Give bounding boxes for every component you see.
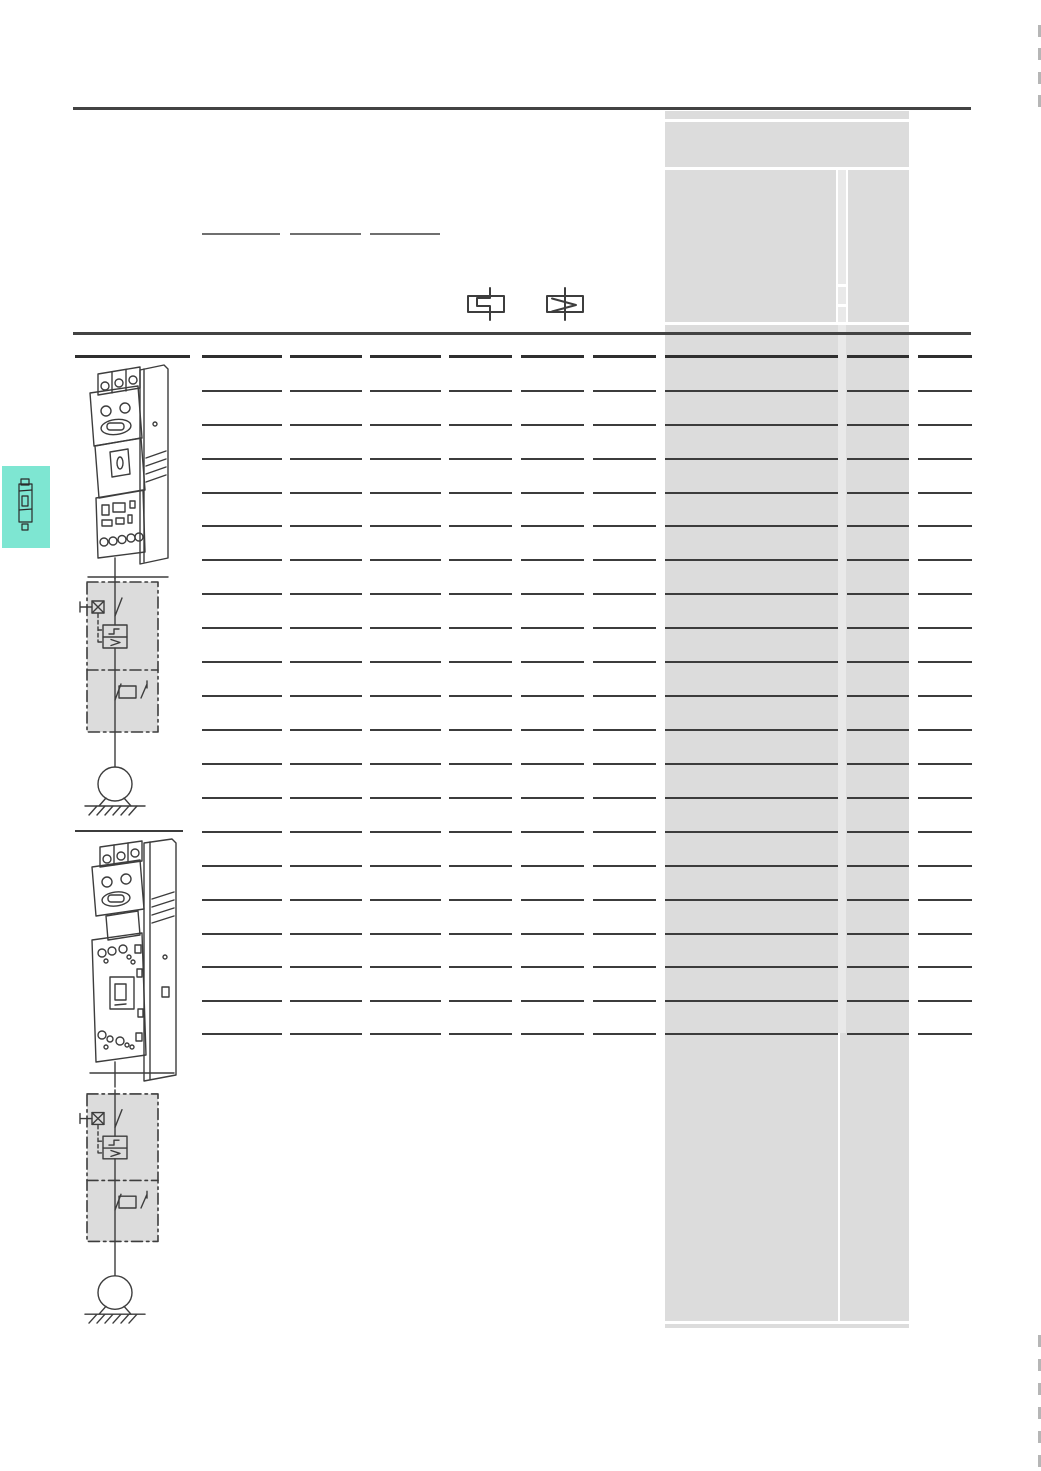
table-row-line (290, 390, 362, 392)
redacted-text-line (290, 233, 361, 235)
table-row-line (370, 661, 441, 663)
catalog-page (0, 0, 1041, 1471)
table-row-line (918, 695, 972, 697)
table-row-line (847, 933, 909, 935)
table-row-line (521, 797, 584, 799)
table-row-line (521, 966, 584, 968)
table-row-line (521, 661, 584, 663)
table-row-line (521, 763, 584, 765)
table-row-line (918, 899, 972, 901)
table-row-line (290, 525, 362, 527)
table-row-line (449, 763, 512, 765)
chapter-tab (2, 466, 50, 548)
wiring-diagram-1 (75, 578, 175, 818)
table-row-line (202, 661, 282, 663)
info-panel-strip-divider (836, 284, 848, 287)
info-panel-divider (665, 1321, 909, 1324)
table-header-line (665, 355, 838, 358)
table-row-line (449, 966, 512, 968)
table-row-line (370, 797, 441, 799)
table-row-line (847, 899, 909, 901)
edge-tick (1038, 25, 1041, 37)
table-header-line (449, 355, 512, 358)
table-row-line (665, 695, 838, 697)
table-row-line (290, 797, 362, 799)
info-panel-divider (665, 322, 909, 325)
table-row-line (847, 831, 909, 833)
table-header-line (290, 355, 362, 358)
table-row-line (290, 593, 362, 595)
info-panel-strip-divider (836, 304, 848, 307)
table-row-line (521, 899, 584, 901)
table-row-line (665, 661, 838, 663)
edge-tick (1038, 1359, 1041, 1371)
table-row-line (449, 865, 512, 867)
table-row-line (847, 729, 909, 731)
table-row-line (290, 492, 362, 494)
table-top-rule (73, 332, 971, 335)
table-row-line (290, 695, 362, 697)
section-separator (75, 830, 183, 832)
table-row-line (593, 797, 656, 799)
table-row-line (847, 865, 909, 867)
table-row-line (521, 1000, 584, 1002)
table-row-line (449, 933, 512, 935)
table-row-line (918, 933, 972, 935)
table-row-line (847, 525, 909, 527)
table-header-line (918, 355, 972, 358)
table-row-line (449, 899, 512, 901)
table-row-line (202, 390, 282, 392)
info-panel-vdivider (846, 169, 848, 322)
table-row-line (665, 933, 838, 935)
table-row-line (665, 559, 838, 561)
table-row-line (918, 865, 972, 867)
table-row-line (202, 424, 282, 426)
table-row-line (665, 627, 838, 629)
table-header-line (521, 355, 584, 358)
table-row-line (593, 559, 656, 561)
table-row-line (593, 729, 656, 731)
table-row-line (521, 492, 584, 494)
table-row-line (593, 390, 656, 392)
table-row-line (202, 695, 282, 697)
table-row-line (290, 1033, 362, 1035)
table-row-line (593, 831, 656, 833)
table-row-line (370, 627, 441, 629)
thermal-overload-release-symbol (462, 282, 508, 326)
table-row-line (202, 593, 282, 595)
redacted-text-line (202, 233, 280, 235)
table-row-line (918, 458, 972, 460)
table-row-line (665, 424, 838, 426)
table-row-line (847, 1033, 909, 1035)
table-row-line (847, 966, 909, 968)
table-row-line (918, 729, 972, 731)
tab-device-icon (13, 476, 39, 536)
redacted-text-line (370, 233, 440, 235)
table-row-line (370, 492, 441, 494)
table-row-line (449, 831, 512, 833)
table-row-line (918, 966, 972, 968)
table-row-line (665, 1000, 838, 1002)
table-row-line (202, 966, 282, 968)
table-row-line (521, 390, 584, 392)
table-row-line (370, 458, 441, 460)
table-row-line (202, 1000, 282, 1002)
table-row-line (290, 661, 362, 663)
table-row-line (665, 1033, 838, 1035)
table-row-line (449, 797, 512, 799)
table-row-line (449, 492, 512, 494)
table-row-line (593, 593, 656, 595)
info-panel-vdivider (838, 1033, 840, 1321)
edge-tick (1038, 1383, 1041, 1395)
table-row-line (593, 661, 656, 663)
table-row-line (665, 899, 838, 901)
table-header-line (847, 355, 909, 358)
info-panel (665, 111, 909, 1328)
table-row-line (918, 1033, 972, 1035)
table-row-line (202, 865, 282, 867)
table-row-line (593, 458, 656, 460)
edge-tick (1038, 1407, 1041, 1419)
table-row-line (449, 458, 512, 460)
table-header-line (202, 355, 282, 358)
table-row-line (202, 899, 282, 901)
table-row-line (593, 627, 656, 629)
table-row-line (202, 492, 282, 494)
table-row-line (665, 831, 838, 833)
table-row-line (370, 933, 441, 935)
table-row-line (202, 559, 282, 561)
table-row-line (593, 966, 656, 968)
table-row-line (521, 1033, 584, 1035)
table-row-line (449, 593, 512, 595)
table-row-line (847, 661, 909, 663)
table-row-line (918, 763, 972, 765)
table-row-line (847, 593, 909, 595)
table-row-line (370, 424, 441, 426)
edge-tick (1038, 95, 1041, 107)
edge-tick (1038, 72, 1041, 84)
info-panel-divider (665, 167, 909, 170)
table-row-line (521, 593, 584, 595)
table-row-line (665, 797, 838, 799)
table-row-line (290, 831, 362, 833)
table-row-line (521, 559, 584, 561)
table-row-line (918, 525, 972, 527)
table-row-line (521, 627, 584, 629)
table-row-line (918, 627, 972, 629)
table-row-line (370, 763, 441, 765)
table-row-line (202, 729, 282, 731)
table-row-line (290, 865, 362, 867)
table-row-line (202, 763, 282, 765)
edge-tick (1038, 48, 1041, 60)
table-row-line (521, 865, 584, 867)
table-row-line (665, 458, 838, 460)
table-row-line (202, 1033, 282, 1035)
table-row-line (290, 763, 362, 765)
table-row-line (521, 458, 584, 460)
table-row-line (918, 492, 972, 494)
table-row-line (593, 899, 656, 901)
table-row-line (449, 695, 512, 697)
table-row-line (665, 593, 838, 595)
table-row-line (665, 390, 838, 392)
table-row-line (847, 627, 909, 629)
table-row-line (370, 525, 441, 527)
edge-tick (1038, 1431, 1041, 1443)
table-row-line (847, 424, 909, 426)
table-row-line (521, 424, 584, 426)
table-row-line (593, 1000, 656, 1002)
table-row-line (370, 831, 441, 833)
table-row-line (521, 525, 584, 527)
table-row-line (521, 933, 584, 935)
table-row-line (593, 695, 656, 697)
table-row-line (290, 966, 362, 968)
table-row-line (918, 661, 972, 663)
edge-tick (1038, 1335, 1041, 1347)
table-row-line (918, 831, 972, 833)
table-row-line (665, 966, 838, 968)
table-row-line (290, 933, 362, 935)
table-row-line (665, 763, 838, 765)
table-row-line (202, 933, 282, 935)
table-row-line (290, 627, 362, 629)
table-row-line (449, 1033, 512, 1035)
table-row-line (847, 458, 909, 460)
table-row-line (847, 763, 909, 765)
table-row-line (290, 424, 362, 426)
table-row-line (918, 797, 972, 799)
table-row-line (918, 424, 972, 426)
table-row-line (847, 559, 909, 561)
table-row-line (847, 797, 909, 799)
table-row-line (665, 492, 838, 494)
table-row-line (593, 763, 656, 765)
table-row-line (202, 831, 282, 833)
table-row-line (918, 1000, 972, 1002)
table-row-line (370, 966, 441, 968)
table-row-line (202, 525, 282, 527)
magnetic-overcurrent-release-symbol (540, 282, 588, 326)
info-panel-strip (838, 169, 846, 1033)
table-row-line (370, 593, 441, 595)
table-row-line (370, 899, 441, 901)
table-row-line (449, 627, 512, 629)
table-row-line (593, 865, 656, 867)
table-row-line (290, 899, 362, 901)
table-row-line (847, 390, 909, 392)
table-row-line (847, 492, 909, 494)
table-row-line (521, 831, 584, 833)
edge-tick (1038, 1455, 1041, 1467)
table-row-line (290, 559, 362, 561)
table-row-line (521, 729, 584, 731)
table-row-line (290, 1000, 362, 1002)
product-drawing-starter-2 (80, 837, 182, 1087)
product-drawing-starter-1 (80, 362, 175, 579)
table-row-line (202, 458, 282, 460)
info-panel-divider (665, 119, 909, 122)
table-row-line (847, 695, 909, 697)
top-rule (73, 107, 971, 110)
table-row-line (918, 390, 972, 392)
table-row-line (449, 424, 512, 426)
table-header-line (370, 355, 441, 358)
table-header-line (593, 355, 656, 358)
table-row-line (449, 559, 512, 561)
table-row-line (665, 525, 838, 527)
table-row-line (665, 865, 838, 867)
table-row-line (370, 695, 441, 697)
table-row-line (202, 797, 282, 799)
table-row-line (370, 1000, 441, 1002)
table-row-line (847, 1000, 909, 1002)
table-row-line (370, 865, 441, 867)
table-row-line (593, 424, 656, 426)
table-row-line (449, 1000, 512, 1002)
table-row-line (290, 458, 362, 460)
table-row-line (521, 695, 584, 697)
table-row-line (370, 1033, 441, 1035)
table-row-line (593, 1033, 656, 1035)
table-row-line (593, 933, 656, 935)
table-row-line (449, 729, 512, 731)
table-header-line (75, 355, 190, 358)
table-row-line (202, 627, 282, 629)
info-panel-vdivider (836, 169, 838, 322)
table-row-line (290, 729, 362, 731)
table-row-line (370, 390, 441, 392)
table-row-line (665, 729, 838, 731)
table-row-line (449, 525, 512, 527)
wiring-diagram-2 (75, 1090, 175, 1326)
table-row-line (449, 390, 512, 392)
table-row-line (449, 661, 512, 663)
table-row-line (918, 593, 972, 595)
table-row-line (370, 559, 441, 561)
table-row-line (593, 492, 656, 494)
table-row-line (370, 729, 441, 731)
table-row-line (918, 559, 972, 561)
table-row-line (593, 525, 656, 527)
